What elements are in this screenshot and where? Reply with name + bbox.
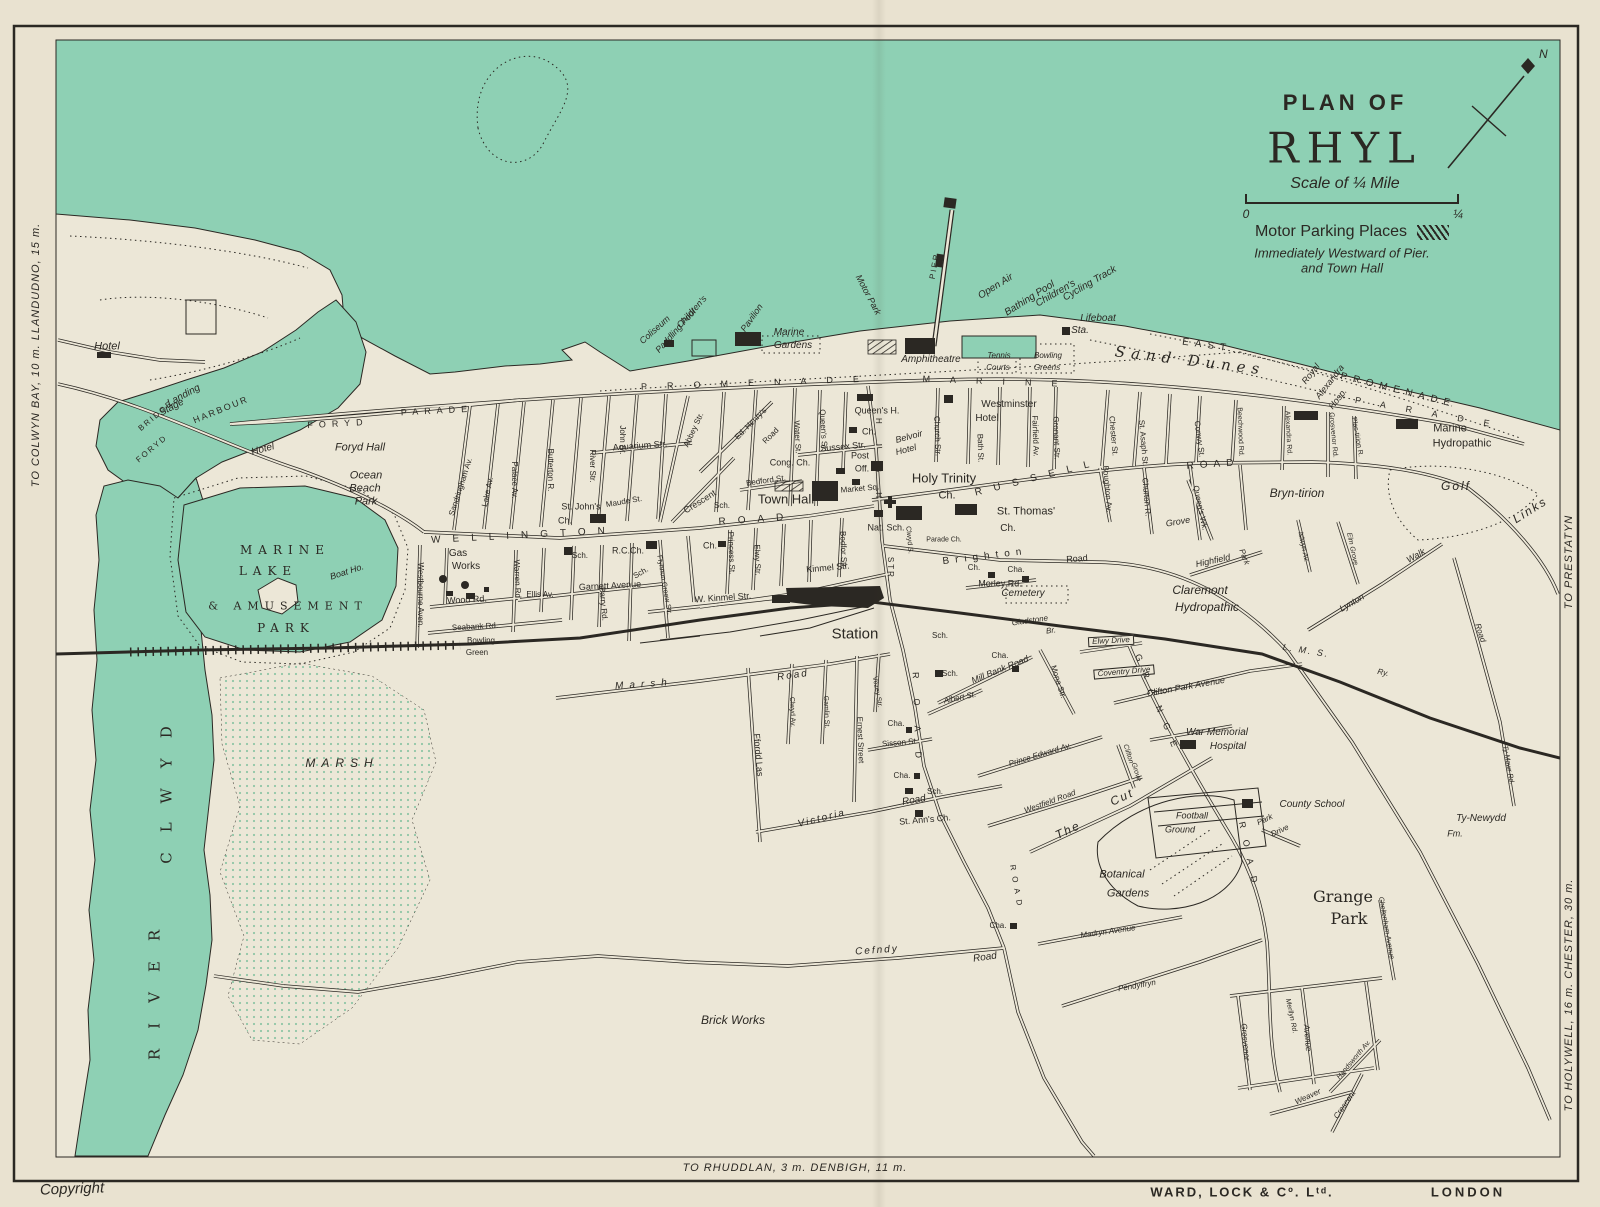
- map-label: Botanical: [1099, 870, 1144, 881]
- map-label: Ocean: [350, 471, 382, 482]
- map-label: Church Str.: [932, 416, 941, 456]
- margin-left-destinations: TO COLWYN BAY, 10 m. LLANDUDNO, 15 m.: [30, 223, 42, 487]
- map-label: R.C.Ch.: [612, 547, 644, 556]
- map-label: Football: [1176, 812, 1208, 821]
- map-label: Ernest Street: [855, 717, 865, 764]
- margin-right-prestatyn: TO PRESTATYN: [1563, 515, 1575, 610]
- map-label: Marine: [774, 328, 805, 338]
- map-label: Bowling: [1034, 352, 1062, 360]
- map-label: County School: [1279, 800, 1344, 810]
- parking-legend-label: Motor Parking Places: [1255, 223, 1407, 241]
- page-title: RHYL: [1267, 124, 1423, 173]
- parking-hatch-swatch: [1417, 225, 1449, 240]
- map-label: Hotel: [94, 342, 120, 353]
- map-label: Fairfield Av.: [1030, 415, 1039, 456]
- map-label: Tennis: [987, 352, 1010, 360]
- map-label: Grange: [1313, 889, 1373, 905]
- map-label: Cha.: [990, 922, 1007, 930]
- map-label: RIVER: [148, 910, 163, 1060]
- map-label: Claremont: [1172, 584, 1227, 596]
- map-label: & AMUSEMENT: [208, 601, 368, 612]
- map-label: War Memorial: [1186, 728, 1248, 738]
- parking-legend: Motor Parking Places: [1255, 223, 1449, 241]
- publisher-city: LONDON: [1431, 1185, 1505, 1200]
- map-label: Sch.: [932, 632, 948, 640]
- map-label: Princess St.: [726, 532, 735, 575]
- map-label: Gronant Str.: [1051, 416, 1061, 459]
- map-label: Road: [1066, 554, 1088, 564]
- map-label: Works: [452, 562, 480, 572]
- map-label: CLWYD: [160, 706, 175, 863]
- map-label: Off.: [855, 465, 869, 474]
- map-label: Barry Rd.: [598, 587, 609, 621]
- scale-bar: [1245, 196, 1459, 204]
- map-label: St. John's: [561, 503, 600, 512]
- scale-end: ¼: [1453, 207, 1463, 221]
- map-label: Sch.: [572, 552, 588, 560]
- map-label: Fm.: [1447, 830, 1463, 839]
- map-label: Brick Works: [701, 1014, 765, 1026]
- map-label: Cha.: [992, 652, 1009, 660]
- childrens-paddling-pool: [692, 340, 716, 356]
- map-label: Clwyd Av.: [788, 697, 796, 727]
- map-label: Beach: [349, 484, 380, 495]
- map-page: N HotelLandingStageBRIDGEFORYDHARBOURHot…: [0, 0, 1600, 1207]
- map-label: Hospital: [1210, 742, 1246, 752]
- map-label: Hydropathic: [1175, 601, 1239, 613]
- map-label: Gamlin St.: [822, 696, 830, 729]
- map-label: Courts: [986, 364, 1010, 372]
- map-label: Ch.: [1000, 524, 1016, 534]
- map-label: Cha.: [888, 720, 905, 728]
- map-label: Palace Av.: [510, 461, 518, 498]
- map-label: Sch.: [927, 788, 943, 796]
- map-label: Butterton R.: [546, 449, 554, 492]
- map-label: Ch.: [558, 517, 572, 526]
- title-plan-of: PLAN OF: [1283, 90, 1408, 116]
- map-label: Elwy Str.: [752, 544, 761, 575]
- map-label: Post: [851, 452, 869, 461]
- map-label: STR.: [886, 557, 894, 583]
- map-label: Golf: [1441, 480, 1471, 492]
- map-label: Cong. Ch.: [770, 459, 811, 468]
- map-label: Sch.: [942, 670, 958, 678]
- map-label: Sta.: [1071, 326, 1089, 336]
- map-label: Holy Trinity: [912, 472, 976, 485]
- map-label: Ellis Av.: [526, 591, 553, 599]
- map-label: Park: [1331, 911, 1368, 927]
- map-label: Hydropathic: [1433, 439, 1492, 450]
- map-label: St. Thomas': [997, 507, 1055, 518]
- map-label: Park: [355, 497, 378, 508]
- map-label: MARINE: [240, 544, 330, 556]
- map-label: Town Hall: [758, 493, 814, 506]
- map-label: Gardens: [774, 341, 812, 351]
- map-label: Westminster: [981, 400, 1036, 410]
- publisher-imprint: WARD, LOCK & Cº. Lᵗᵈ.: [1150, 1185, 1333, 1200]
- map-label: Green: [466, 649, 488, 657]
- map-label: Bath St.: [976, 434, 985, 463]
- copyright-note: Copyright: [40, 1179, 105, 1198]
- parking-note-2: and Town Hall: [1301, 261, 1383, 276]
- map-label: Foryd Hall: [335, 443, 385, 454]
- map-label: Cemetery: [1001, 589, 1044, 599]
- map-label: Avenue: [1302, 1024, 1312, 1052]
- map-label: Water St.: [792, 420, 802, 453]
- map-label: Bowling: [467, 637, 495, 645]
- map-label: PARK: [257, 622, 315, 634]
- map-label: Marine: [1433, 424, 1467, 435]
- map-label: Sch.: [714, 502, 730, 510]
- map-label: Greens: [1034, 364, 1060, 372]
- parking-note-1: Immediately Westward of Pier.: [1254, 246, 1430, 261]
- map-label: Gardens: [1107, 889, 1149, 900]
- map-label: Cha.: [1008, 566, 1025, 574]
- map-label: Bryn-tirion: [1270, 487, 1325, 499]
- map-label: Gas: [449, 549, 467, 559]
- map-label: Hotel: [975, 414, 998, 424]
- map-label: Ty-Newydd: [1456, 814, 1506, 824]
- map-label: Warren Rd.: [512, 560, 521, 601]
- map-label: River Str.: [588, 450, 596, 483]
- map-label: LAKE: [239, 565, 297, 577]
- map-label: Lifeboat: [1080, 314, 1116, 324]
- map-label: Westbourne Aven.: [416, 562, 424, 627]
- map-label: MARSH: [305, 757, 378, 769]
- map-label: Ch.: [968, 564, 980, 572]
- margin-right-holywell: TO HOLYWELL, 16 m. CHESTER, 30 m.: [1563, 879, 1575, 1112]
- scale-start: 0: [1243, 207, 1250, 221]
- map-label: Br.: [1046, 626, 1057, 635]
- scale-caption: Scale of ¼ Mile: [1290, 175, 1399, 193]
- paper-fold-crease: [872, 0, 886, 1207]
- compass-north-label: N: [1539, 47, 1548, 61]
- map-label: Ch.: [938, 491, 955, 502]
- map-label: Parade Ch.: [926, 537, 961, 544]
- map-label: Ch.: [703, 542, 717, 551]
- map-label: Amphitheatre: [901, 355, 960, 365]
- map-label: Ground: [1165, 826, 1195, 835]
- map-label: Cha.: [894, 772, 911, 780]
